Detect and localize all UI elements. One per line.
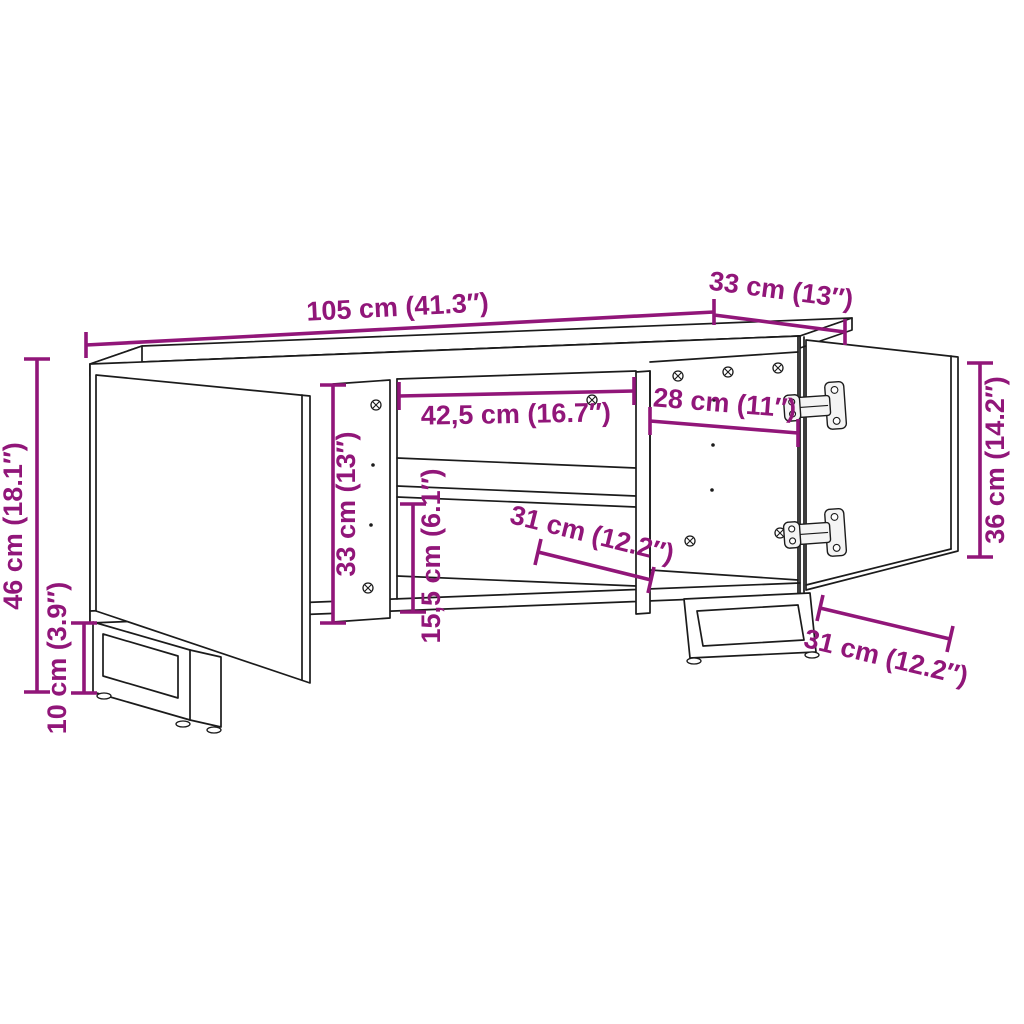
hinge-screw (833, 544, 840, 551)
dim-label: 33 cm (13″) (707, 266, 855, 315)
dimension-diagram: 105 cm (41.3″) 33 cm (13″) 46 cm (18.1″)… (0, 0, 1024, 1024)
pilot-hole-dot (710, 488, 714, 492)
hinge-screw (831, 513, 838, 520)
leg-foot-pad (176, 721, 190, 727)
dimension-door-width: 31 cm (12.2″) (801, 595, 971, 691)
leg-foot-pad (687, 658, 701, 664)
right-leg-cutout (697, 605, 804, 646)
dim-label: 33 cm (13″) (331, 431, 361, 576)
dim-label: 10 cm (3.9″) (42, 582, 72, 735)
pilot-hole-dot (369, 523, 373, 527)
left-leg-rear-bar (190, 650, 221, 727)
dim-label: 31 cm (12.2″) (801, 623, 971, 691)
hinge-cup-screw (789, 538, 795, 544)
dimension-door-height: 36 cm (14.2″) (967, 363, 1010, 557)
leg-foot-pad (97, 693, 111, 699)
dim-label: 105 cm (41.3″) (306, 287, 490, 327)
dimension-leg-height: 10 cm (3.9″) (42, 582, 97, 735)
dim-label: 46 cm (18.1″) (0, 442, 28, 610)
dim-label: 36 cm (14.2″) (980, 376, 1010, 544)
dim-label: 15,5 cm (6.1″) (416, 468, 446, 643)
dim-label: 42,5 cm (16.7″) (421, 397, 612, 430)
cabinet-drawing: 105 cm (41.3″) 33 cm (13″) 46 cm (18.1″)… (0, 0, 1024, 1024)
hinge-screw (833, 417, 840, 424)
leg-foot-pad (207, 727, 221, 733)
right-leg (684, 593, 819, 664)
hinge-screw (831, 386, 838, 393)
pilot-hole-dot (711, 443, 715, 447)
pilot-hole-dot (371, 463, 375, 467)
hinge-cup-screw (789, 526, 795, 532)
